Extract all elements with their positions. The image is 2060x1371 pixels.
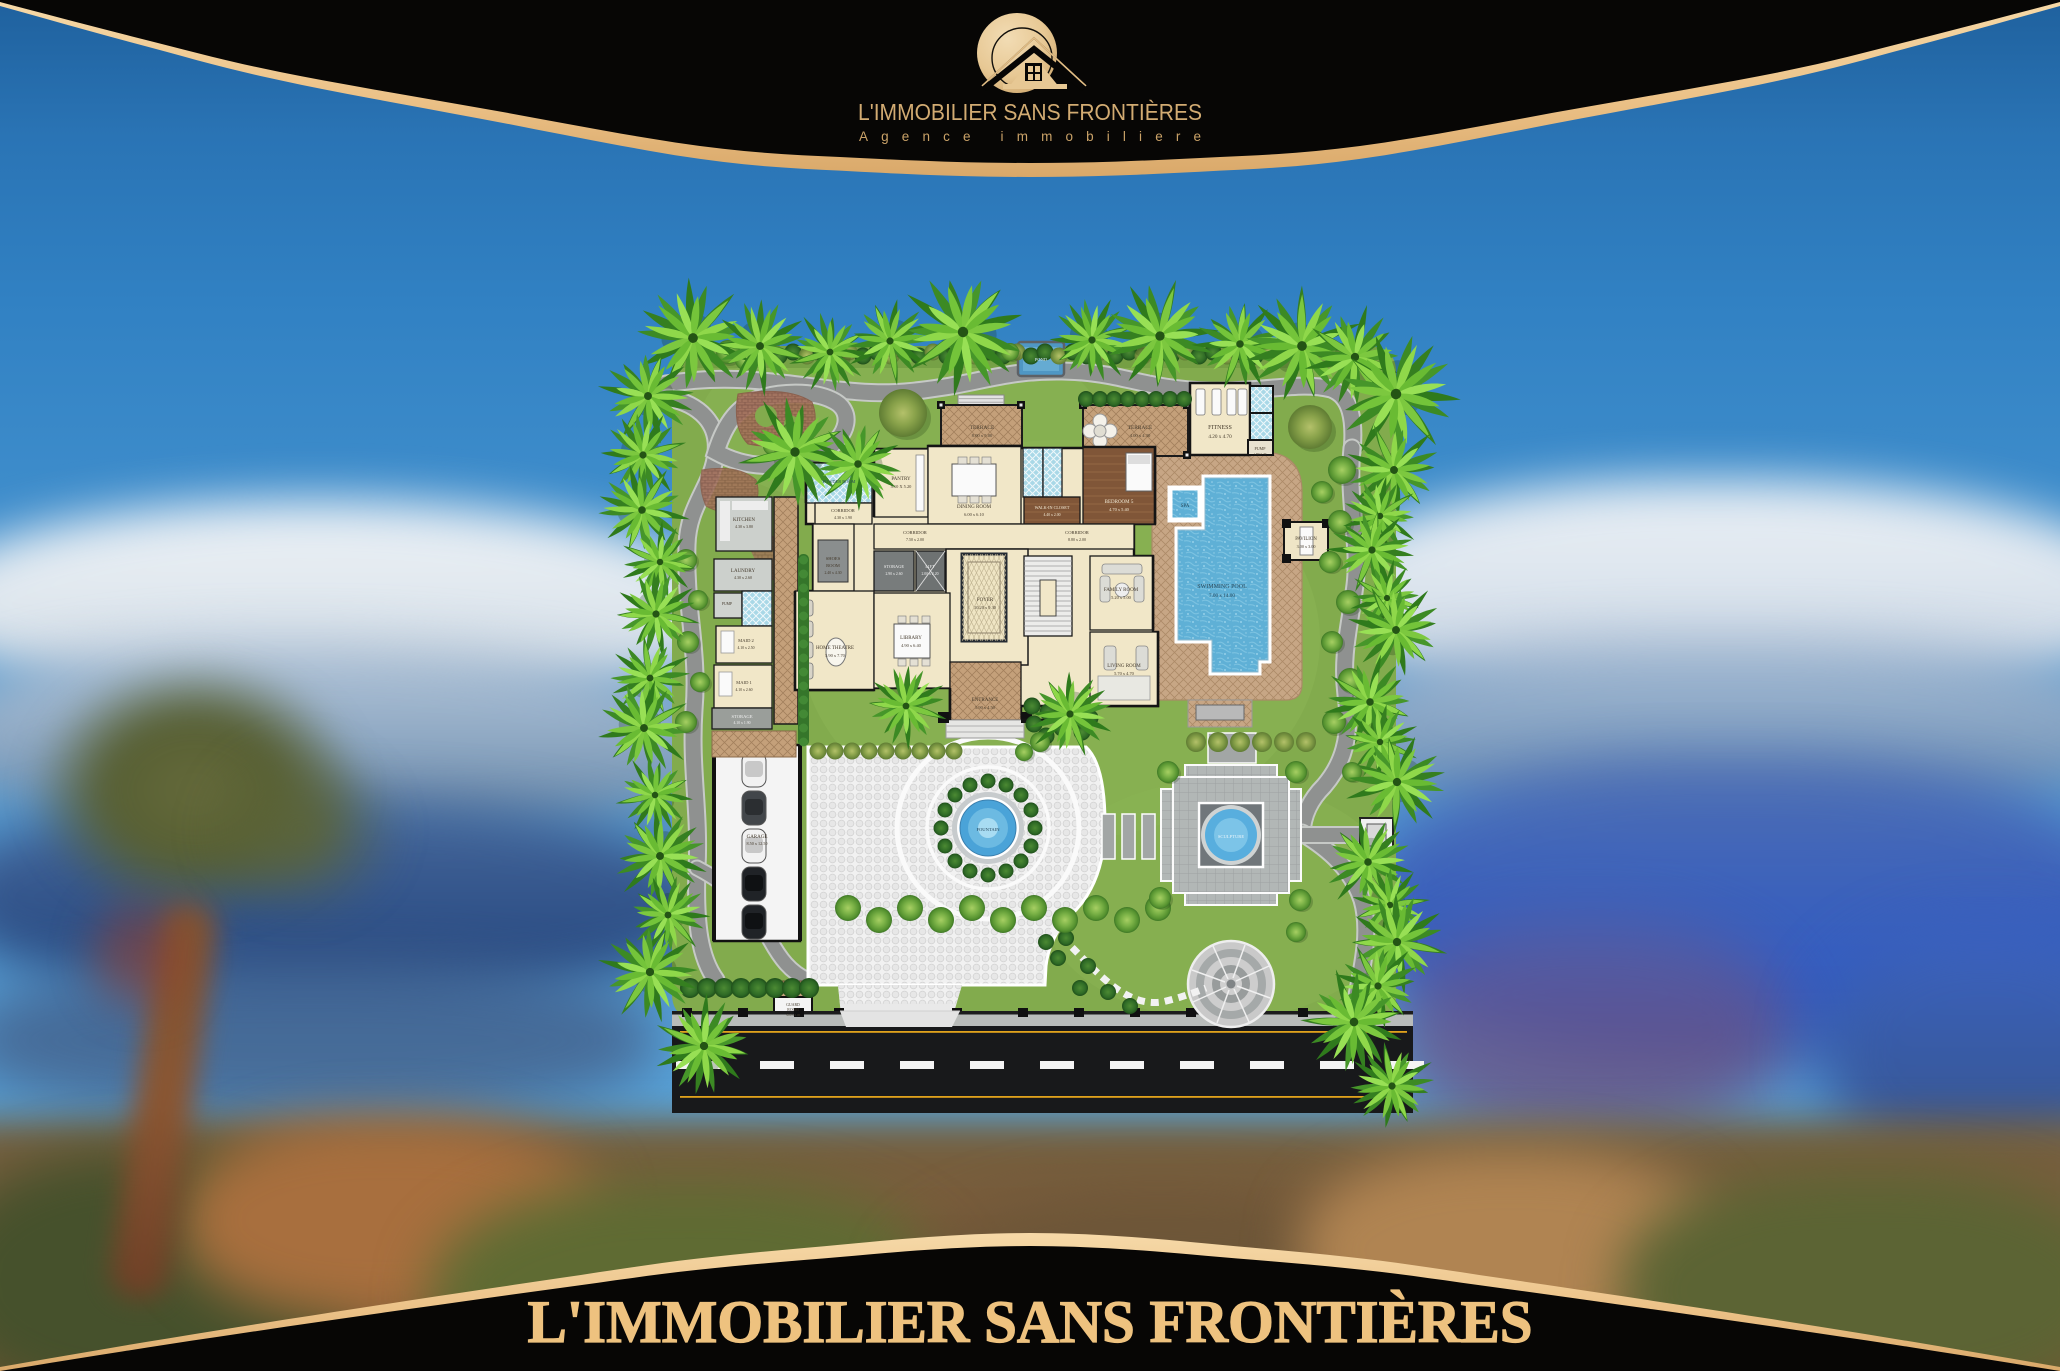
svg-text:7.00 x 14.00: 7.00 x 14.00 <box>1209 593 1235 599</box>
svg-text:DINING ROOM: DINING ROOM <box>957 505 992 510</box>
svg-text:SWIMMING POOL: SWIMMING POOL <box>1197 584 1247 590</box>
svg-text:TERRACE: TERRACE <box>1128 425 1153 431</box>
svg-text:7.50 x 2.00: 7.50 x 2.00 <box>906 537 924 542</box>
svg-text:TERRACE: TERRACE <box>970 425 995 431</box>
svg-text:3.00 x 2.00: 3.00 x 2.00 <box>786 1013 801 1017</box>
svg-text:5.20 x 5.00: 5.20 x 5.00 <box>1111 595 1132 600</box>
svg-text:LIVING ROOM: LIVING ROOM <box>1107 664 1141 669</box>
svg-text:4.00 x 4.30: 4.00 x 4.30 <box>1130 433 1151 438</box>
svg-text:ENTRANCE: ENTRANCE <box>972 698 999 703</box>
svg-text:L'IMMOBILIER SANS FRONTIÈRES: L'IMMOBILIER SANS FRONTIÈRES <box>528 1289 1533 1355</box>
svg-text:SPA: SPA <box>1181 504 1190 509</box>
svg-text:STORAGE: STORAGE <box>731 714 752 719</box>
svg-text:4.70 x 5.40: 4.70 x 5.40 <box>1109 507 1130 512</box>
svg-text:KITCHEN: KITCHEN <box>733 518 755 523</box>
svg-text:PUMP: PUMP <box>1255 446 1267 451</box>
svg-text:4.90 x 6.40: 4.90 x 6.40 <box>901 643 922 648</box>
svg-text:SCULPTURE: SCULPTURE <box>1218 834 1244 839</box>
svg-text:STORAGE: STORAGE <box>884 564 904 569</box>
svg-text:LIBRARY: LIBRARY <box>900 636 922 641</box>
svg-text:FOYER: FOYER <box>977 598 994 603</box>
svg-text:GARAGE: GARAGE <box>747 835 768 840</box>
svg-text:8.80 x 2.00: 8.80 x 2.00 <box>1068 537 1086 542</box>
svg-text:FITNESS: FITNESS <box>1208 425 1232 431</box>
svg-text:4.20 x 4.70: 4.20 x 4.70 <box>1208 434 1232 440</box>
svg-text:FAMILY ROOM: FAMILY ROOM <box>1104 588 1139 593</box>
svg-text:8.50 x 12.50: 8.50 x 12.50 <box>747 841 768 846</box>
svg-text:2.40 x 4.30: 2.40 x 4.30 <box>824 571 841 575</box>
svg-text:5.70 x 4.70: 5.70 x 4.70 <box>1114 671 1135 676</box>
svg-text:PUMP: PUMP <box>722 602 732 606</box>
svg-text:WALK-IN CLOSET: WALK-IN CLOSET <box>1035 505 1070 510</box>
svg-text:BEDROOM 5: BEDROOM 5 <box>1105 500 1134 505</box>
svg-text:CORRIDOR: CORRIDOR <box>903 530 928 535</box>
svg-text:4.10 x 2.50: 4.10 x 2.50 <box>737 646 754 650</box>
svg-text:4.10 x 1.90: 4.10 x 1.90 <box>733 721 750 725</box>
svg-text:1.80x1.30: 1.80x1.30 <box>1254 452 1267 456</box>
svg-text:4.30 x 3.80: 4.30 x 3.80 <box>735 524 753 529</box>
svg-text:10.20 x 9.30: 10.20 x 9.30 <box>974 605 997 610</box>
svg-text:L'IMMOBILIER SANS FRONTIÈRES: L'IMMOBILIER SANS FRONTIÈRES <box>858 99 1202 125</box>
svg-text:8.00 x 5.00: 8.00 x 5.00 <box>972 433 993 438</box>
svg-text:SHOES: SHOES <box>826 556 841 561</box>
svg-text:ROOM: ROOM <box>826 563 840 568</box>
svg-text:MAID 1: MAID 1 <box>736 680 752 685</box>
svg-text:POND: POND <box>1035 357 1048 362</box>
svg-text:HOME THEATRE: HOME THEATRE <box>816 646 854 651</box>
svg-text:PANTRY: PANTRY <box>891 477 911 482</box>
svg-text:POWDER ROOM: POWDER ROOM <box>823 479 856 484</box>
svg-text:LIFT: LIFT <box>925 564 935 569</box>
svg-text:2.00 x 2.20: 2.00 x 2.20 <box>921 572 938 576</box>
svg-text:CORRIDOR: CORRIDOR <box>831 508 856 513</box>
svg-text:CORRIDOR: CORRIDOR <box>1065 530 1090 535</box>
svg-text:5.90 x 7.70: 5.90 x 7.70 <box>825 653 846 658</box>
svg-text:3.00 x 3.00: 3.00 x 3.00 <box>1297 544 1316 549</box>
svg-text:FOUNTAIN: FOUNTAIN <box>976 827 1000 832</box>
svg-text:MAID 2: MAID 2 <box>738 638 754 643</box>
svg-text:PAVILION: PAVILION <box>1295 537 1317 542</box>
svg-text:LAUNDRY: LAUNDRY <box>731 569 756 574</box>
svg-text:4.40 x 2.00: 4.40 x 2.00 <box>1043 513 1060 517</box>
svg-text:5.90 x 4.50: 5.90 x 4.50 <box>975 705 996 710</box>
svg-text:4.30 x 2.60: 4.30 x 2.60 <box>734 575 752 580</box>
svg-text:2.90 x 2.60: 2.90 x 2.60 <box>885 572 902 576</box>
svg-text:4.30 x 1.90: 4.30 x 1.90 <box>834 515 852 520</box>
svg-text:GUARD: GUARD <box>786 1003 800 1007</box>
svg-text:5.10 X 5.20: 5.10 X 5.20 <box>891 484 913 489</box>
svg-text:6.00 x 6.10: 6.00 x 6.10 <box>964 512 985 517</box>
svg-text:4.10 x 2.60: 4.10 x 2.60 <box>735 688 752 692</box>
svg-text:ROOM: ROOM <box>787 1008 799 1012</box>
